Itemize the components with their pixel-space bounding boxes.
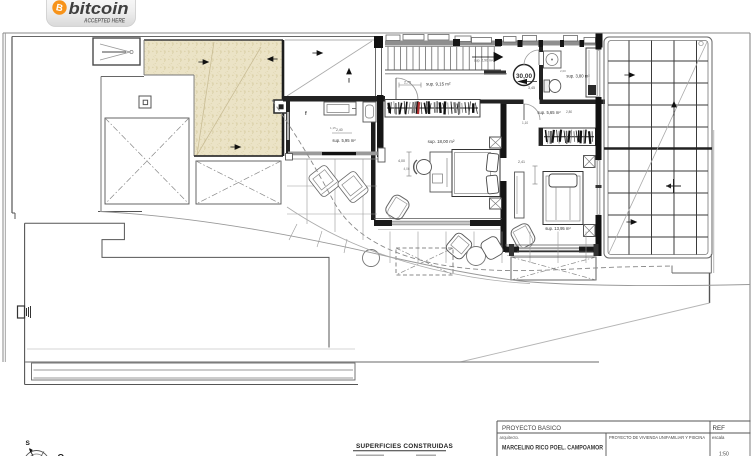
svg-text:1,15: 1,15 [330, 126, 336, 130]
svg-text:SUPERFICIES CONSTRUIDAS: SUPERFICIES CONSTRUIDAS [356, 443, 453, 450]
svg-text:sup. 13,95 m²: sup. 13,95 m² [545, 226, 571, 231]
svg-text:30,00: 30,00 [516, 73, 532, 80]
svg-text:sup. 9,15 m²: sup. 9,15 m² [426, 82, 451, 87]
svg-text:1:50: 1:50 [719, 452, 729, 457]
svg-text:S: S [26, 440, 31, 447]
svg-text:sup. 5,95 m²: sup. 5,95 m² [332, 138, 356, 143]
svg-text:sup. 3,80 m²: sup. 3,80 m² [566, 74, 590, 79]
svg-text:O: O [58, 452, 65, 456]
svg-text:2,40: 2,40 [336, 128, 343, 132]
svg-text:2,00: 2,00 [560, 69, 566, 73]
svg-text:bitcoin: bitcoin [69, 0, 129, 18]
svg-text:REF: REF [713, 425, 726, 432]
svg-text:ACCEPTED HERE: ACCEPTED HERE [83, 17, 125, 24]
svg-text:PROYECTO BASICO: PROYECTO BASICO [502, 425, 561, 432]
svg-text:4,06: 4,06 [404, 167, 410, 171]
svg-text:sup. 2,90 m²: sup. 2,90 m² [474, 59, 494, 63]
svg-text:3,45: 3,45 [528, 86, 535, 90]
svg-text:1,10: 1,10 [522, 121, 528, 125]
svg-text:4,00: 4,00 [398, 159, 405, 163]
svg-text:arquitecto.: arquitecto. [500, 435, 520, 440]
svg-text:2,75: 2,75 [404, 81, 411, 85]
svg-text:escala: escala [712, 435, 725, 440]
svg-text:MARCELINO RICO POEL. CAMPOAMOR: MARCELINO RICO POEL. CAMPOAMOR [502, 445, 604, 451]
svg-text:PROYECTO DE VIVIENDA UNIFAMILI: PROYECTO DE VIVIENDA UNIFAMILIAR Y PISCI… [609, 435, 705, 440]
svg-text:sup. 18,00 m²: sup. 18,00 m² [428, 139, 455, 144]
svg-text:2,41: 2,41 [518, 160, 525, 164]
svg-text:2,80: 2,80 [566, 110, 572, 114]
svg-text:sup. 5,65 m²: sup. 5,65 m² [537, 110, 561, 115]
